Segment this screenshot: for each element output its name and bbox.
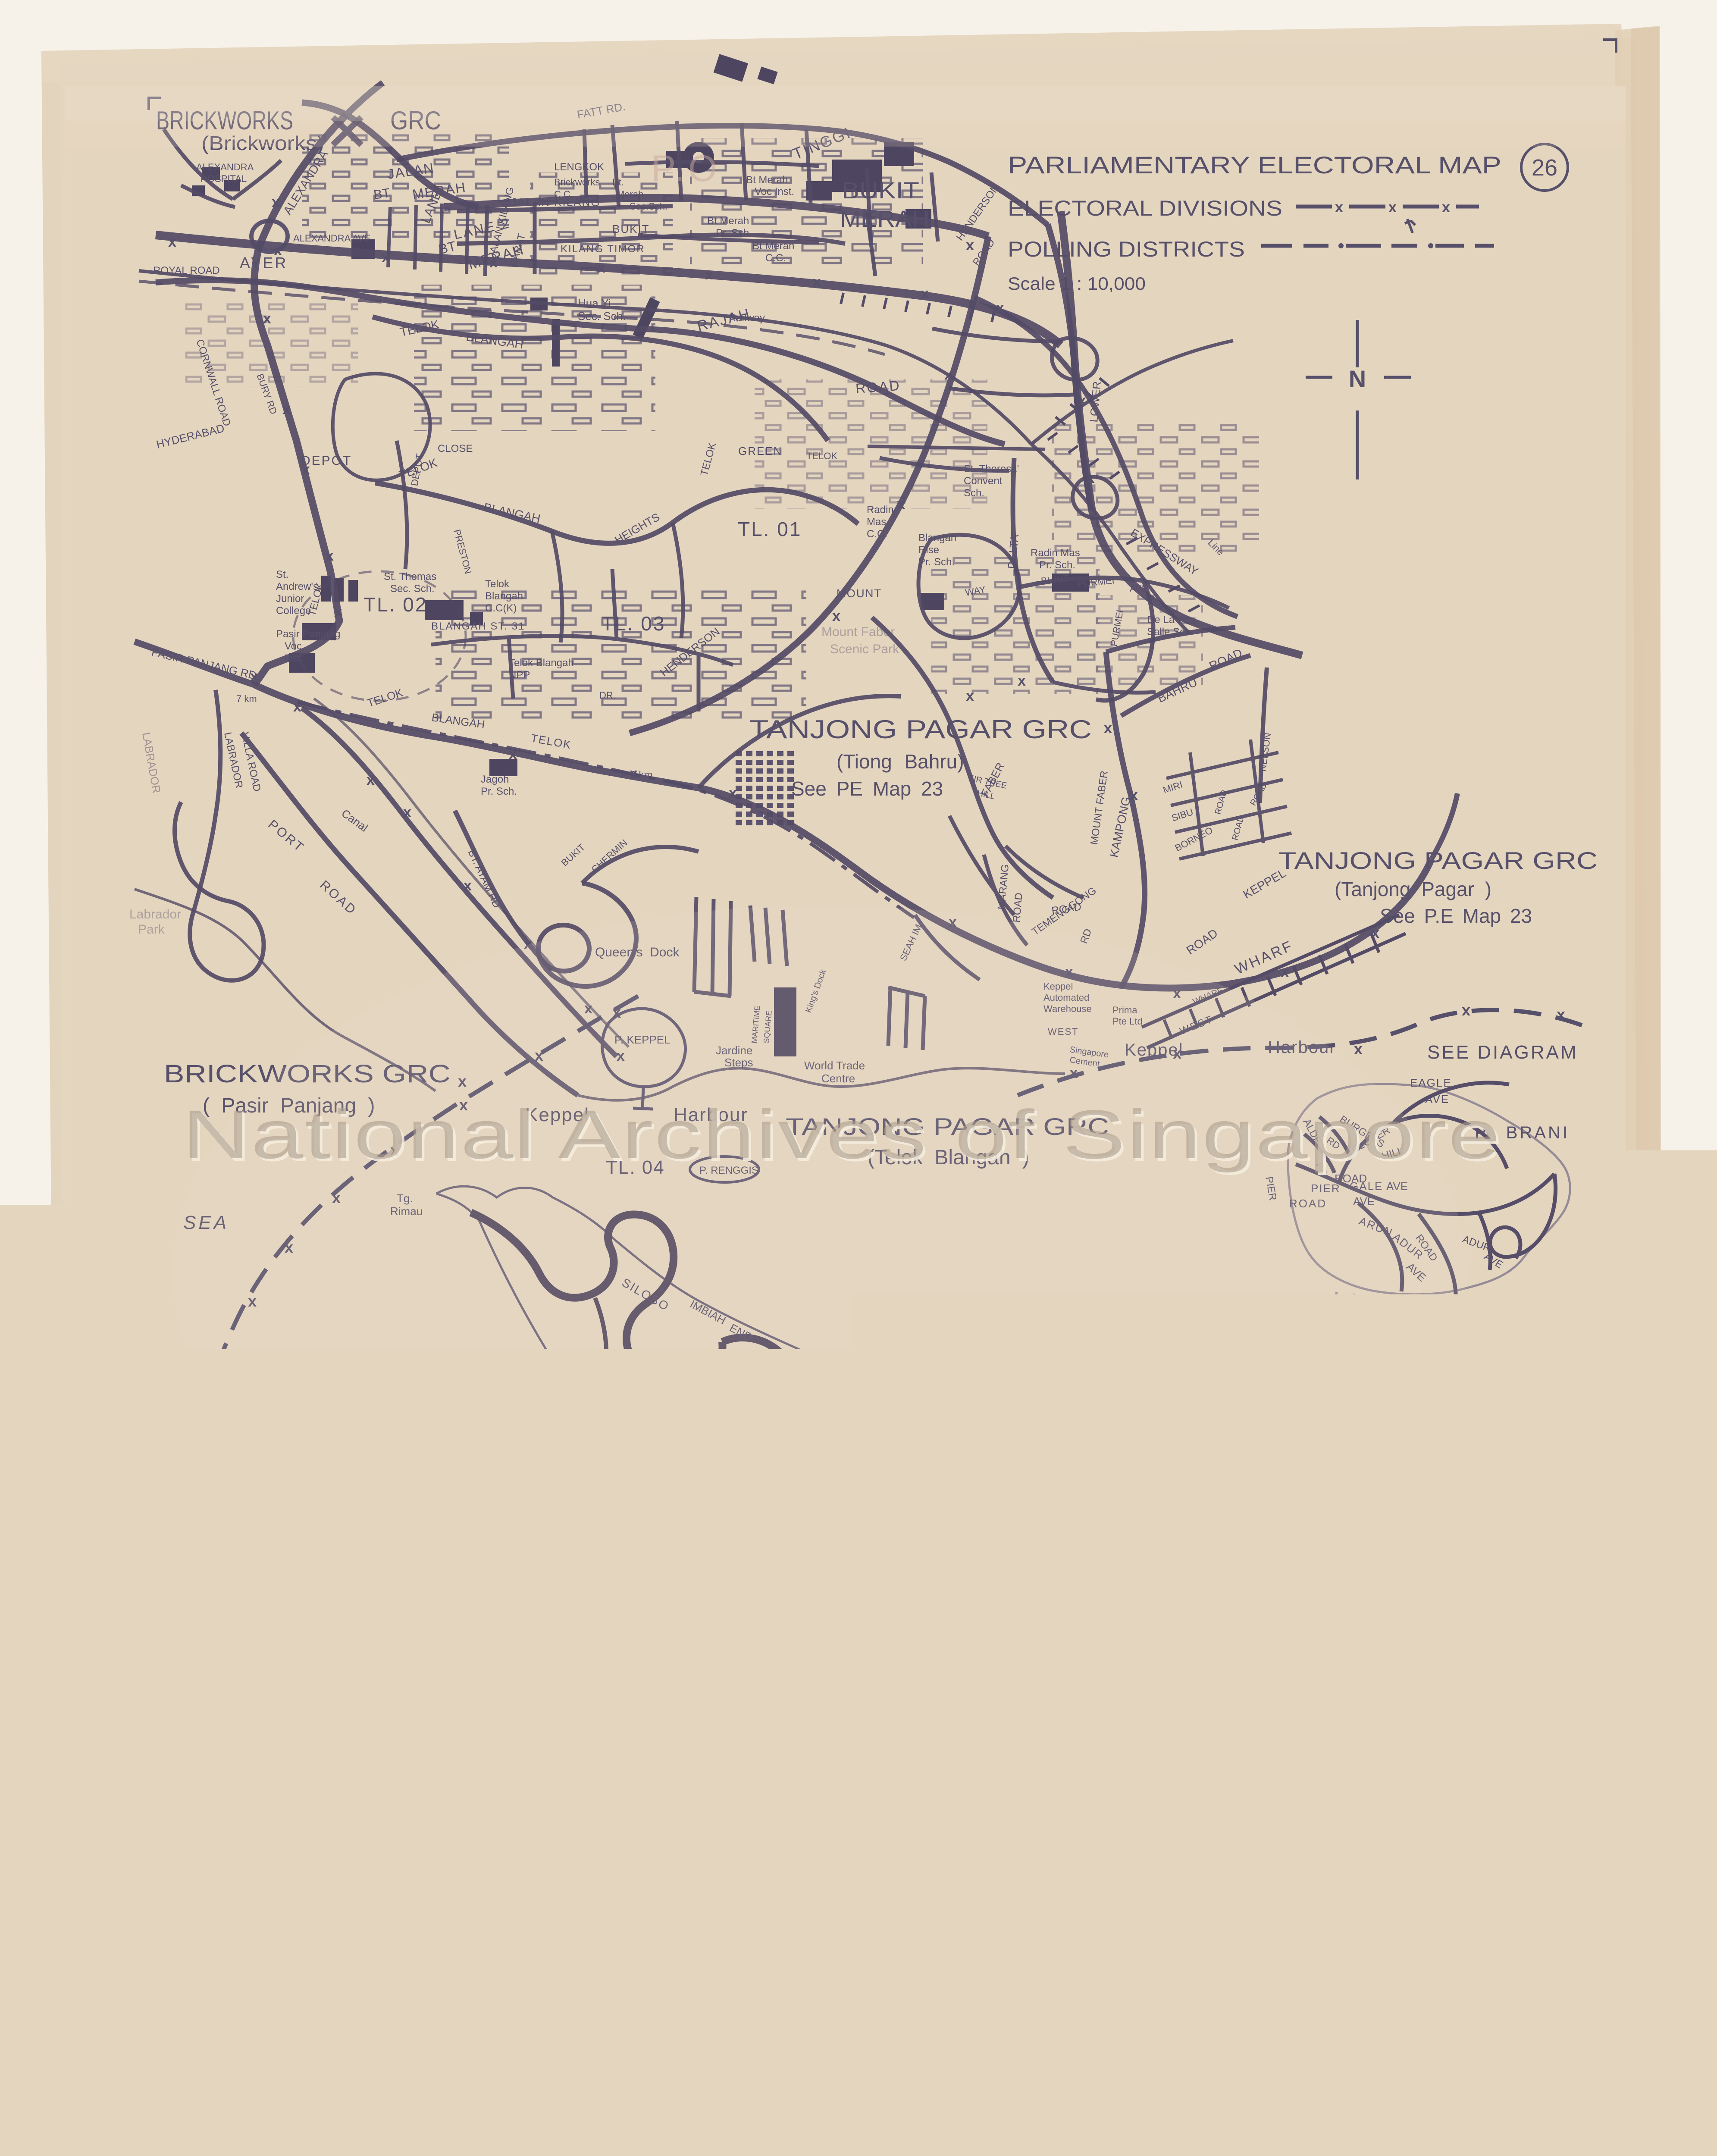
svg-text:Sch.: Sch. <box>964 487 984 499</box>
svg-text:Convent: Convent <box>964 475 1003 487</box>
svg-text:Mount Faber: Mount Faber <box>821 625 895 639</box>
svg-text:NPP: NPP <box>509 669 530 681</box>
svg-text:( Telok Blangah ): ( Telok Blangah ) <box>364 1684 530 1707</box>
svg-text:x: x <box>168 234 176 250</box>
svg-text:Mas: Mas <box>867 516 886 528</box>
svg-text:Chalets: Chalets <box>1291 1691 1326 1702</box>
svg-text:P.O: P.O <box>651 148 721 189</box>
svg-text:KILANG TIMOR: KILANG TIMOR <box>561 243 645 255</box>
svg-text:CLOSE: CLOSE <box>438 443 473 454</box>
svg-text:x: x <box>705 266 713 283</box>
svg-text:x: x <box>1557 1006 1565 1023</box>
svg-text:Bt.: Bt. <box>612 177 624 188</box>
svg-text:x: x <box>326 548 334 564</box>
svg-text:P. TEKUKOR: P. TEKUKOR <box>489 1722 551 1734</box>
svg-text:BT: BT <box>373 186 391 202</box>
svg-text:P. SUBAR LAUT: P. SUBAR LAUT <box>479 1880 555 1891</box>
svg-text:Pr. Sch.: Pr. Sch. <box>918 556 955 568</box>
svg-text:BLANGAH ST. 31: BLANGAH ST. 31 <box>431 620 525 632</box>
svg-text:MOUNT: MOUNT <box>837 587 882 600</box>
svg-text:Bendera: Bendera <box>1535 1438 1578 1451</box>
svg-text:C.C(K): C.C(K) <box>485 602 517 614</box>
svg-text:BURAN: BURAN <box>549 1622 586 1633</box>
svg-text:SEA: SEA <box>1000 1887 1046 1908</box>
svg-text:SENTOSA: SENTOSA <box>390 1607 457 1620</box>
svg-text:x: x <box>1371 925 1379 941</box>
svg-text:Merah: Merah <box>617 189 643 200</box>
svg-text:x: x <box>156 1712 164 1728</box>
svg-text:x: x <box>464 877 472 894</box>
svg-text:ELECTORAL DIVISIONS: ELECTORAL DIVISIONS <box>1008 196 1282 220</box>
svg-text:PARLIAMENTARY ELECTORAL MAP: PARLIAMENTARY ELECTORAL MAP <box>1008 151 1501 179</box>
svg-text:WOOLWICH: WOOLWICH <box>1391 1594 1466 1608</box>
svg-text:EAGLE: EAGLE <box>1410 1076 1452 1089</box>
svg-text:x: x <box>293 699 301 715</box>
svg-text:AYER: AYER <box>240 254 288 272</box>
svg-text:(PEAK ISLAND): (PEAK ISLAND) <box>676 1799 744 1809</box>
svg-text:x: x <box>1281 964 1289 980</box>
svg-text:x: x <box>966 688 974 704</box>
svg-text:LENGKOK: LENGKOK <box>554 161 604 173</box>
svg-text:x: x <box>282 401 291 417</box>
svg-text:Pr. Sch.: Pr. Sch. <box>716 227 752 239</box>
svg-text:x: x <box>1354 1040 1363 1058</box>
svg-text:College: College <box>276 605 311 617</box>
svg-text:DR.: DR. <box>599 690 616 701</box>
svg-text:26: 26 <box>1532 155 1557 181</box>
svg-text:Bt Merah: Bt Merah <box>746 174 788 186</box>
svg-text:x: x <box>198 1557 207 1573</box>
svg-text:N: N <box>1349 365 1366 392</box>
svg-text:TG.: TG. <box>233 1526 249 1537</box>
svg-text:P. TEMBAKUL: P. TEMBAKUL <box>669 1787 736 1799</box>
svg-text:RIMAU: RIMAU <box>229 1537 259 1548</box>
svg-text:Inst.: Inst. <box>285 652 304 664</box>
svg-text:P. SUBAR DARAT: P. SUBAR DARAT <box>468 1847 552 1859</box>
svg-text:7 km: 7 km <box>236 693 257 704</box>
svg-text:x: x <box>996 300 1004 316</box>
svg-text:x: x <box>509 746 517 762</box>
svg-text:x: x <box>334 604 342 620</box>
svg-text:( LAZARUS ISLAND ): ( LAZARUS ISLAND ) <box>640 1839 733 1850</box>
svg-text:P. RENGET: P. RENGET <box>590 1725 645 1737</box>
svg-text:Pr. Sch.: Pr. Sch. <box>1039 559 1075 571</box>
svg-text:ALEXANDRA: ALEXANDRA <box>196 162 254 172</box>
svg-text:Blangah: Blangah <box>485 590 523 602</box>
svg-text:Park: Park <box>138 922 165 937</box>
svg-text:NATIONAL LIBRARY BOARD: NATIONAL LIBRARY BOARD <box>868 2035 992 2045</box>
svg-text:Sec. Sch.: Sec. Sch. <box>578 310 626 323</box>
svg-text:Salle Sch.: Salle Sch. <box>1147 626 1194 638</box>
svg-text:x: x <box>1388 199 1397 216</box>
svg-text:x: x <box>170 1634 179 1651</box>
svg-text:C.C.: C.C. <box>867 528 887 540</box>
svg-text:C.C.: C.C. <box>765 252 786 264</box>
svg-text:TANJONG PAGAR GRC: TANJONG PAGAR GRC <box>749 715 1092 744</box>
svg-text:MERAH: MERAH <box>840 206 930 232</box>
svg-text:DARAT: DARAT <box>551 1633 586 1645</box>
svg-text:x: x <box>1442 199 1450 216</box>
svg-text:GREEN: GREEN <box>738 445 782 458</box>
svg-text:SEA: SEA <box>247 1786 281 1802</box>
svg-text:JALAN KILANG: JALAN KILANG <box>511 196 601 209</box>
svg-text:x: x <box>839 1893 847 1909</box>
svg-text:Bt Merah: Bt Merah <box>707 215 749 227</box>
svg-text:HOSPITAL: HOSPITAL <box>201 173 247 184</box>
svg-text:B30155633D: B30155633D <box>868 2072 936 2085</box>
svg-text:x: x <box>1078 392 1086 409</box>
svg-text:Hua Yi: Hua Yi <box>578 297 611 310</box>
svg-text:BUKIT: BUKIT <box>612 222 650 235</box>
svg-text:TG. CHINA: TG. CHINA <box>452 1682 496 1692</box>
svg-text:Pr. Sch.: Pr. Sch. <box>481 786 517 797</box>
svg-text:Telok Blangah: Telok Blangah <box>509 657 574 669</box>
svg-text:TL. 03: TL. 03 <box>602 612 665 635</box>
svg-text:x: x <box>1087 470 1095 486</box>
svg-text:Blangah: Blangah <box>918 532 956 544</box>
svg-text:(Tiong Bahru): (Tiong Bahru) <box>837 750 964 773</box>
svg-text:x: x <box>776 1940 784 1957</box>
svg-text:x: x <box>921 285 929 302</box>
svg-text:TELOK: TELOK <box>806 451 837 461</box>
svg-text:x: x <box>897 496 905 512</box>
svg-text:x: x <box>1104 720 1112 736</box>
svg-text:Junior: Junior <box>276 593 304 605</box>
svg-text:Voc Inst.: Voc Inst. <box>755 186 794 197</box>
svg-text:National Archives of Singapore: National Archives of Singapore <box>182 1096 1501 1173</box>
svg-text:DIAGRAM: DIAGRAM <box>689 2046 807 2070</box>
svg-text:Serapong: Serapong <box>1391 1515 1474 1536</box>
svg-text:AVE: AVE <box>1130 583 1148 594</box>
svg-text:x: x <box>944 367 952 383</box>
svg-text:St. Thomas: St. Thomas <box>384 571 436 583</box>
svg-text:x: x <box>815 1820 823 1836</box>
svg-text:De La: De La <box>1147 614 1175 626</box>
svg-text:St. Theresa': St. Theresa' <box>964 463 1019 475</box>
svg-text:x: x <box>699 1979 707 1996</box>
svg-text:x: x <box>157 1785 166 1802</box>
svg-text:TL. 01: TL. 01 <box>738 518 802 540</box>
svg-text:Scale 1 : 10,000: Scale 1 : 10,000 <box>1008 273 1146 294</box>
svg-text:x: x <box>832 608 840 624</box>
svg-text:x: x <box>382 249 390 266</box>
svg-text:x: x <box>1335 199 1343 216</box>
svg-text:Telok: Telok <box>1535 1426 1562 1438</box>
svg-text:Pasir Panjang: Pasir Panjang <box>276 628 340 640</box>
svg-text:x: x <box>367 772 375 788</box>
svg-text:Holiday: Holiday <box>1289 1679 1324 1691</box>
svg-text:x: x <box>813 274 821 290</box>
svg-text:St.: St. <box>276 569 288 580</box>
svg-text:Bt Merah: Bt Merah <box>752 240 794 252</box>
svg-text:x: x <box>966 237 974 254</box>
svg-text:Scale 1 : 50,000: Scale 1 : 50,000 <box>675 2074 820 2094</box>
svg-text:(Tanjong Pagar ): (Tanjong Pagar ) <box>1335 878 1491 900</box>
svg-text:P. SAKIJANG BENDERA: P. SAKIJANG BENDERA <box>587 1855 703 1866</box>
svg-text:See P.E Map 23: See P.E Map 23 <box>1380 905 1532 927</box>
svg-text:Rise: Rise <box>918 544 939 556</box>
svg-text:F 6 km: F 6 km <box>621 769 652 781</box>
svg-text:x: x <box>729 785 737 801</box>
svg-text:Sec.Sch.: Sec.Sch. <box>630 201 667 212</box>
svg-text:BUKIT: BUKIT <box>842 178 919 204</box>
svg-text:x: x <box>272 194 280 210</box>
svg-text:x: x <box>1018 673 1026 689</box>
svg-text:P. SAKIJANG PELEPAH: P. SAKIJANG PELEPAH <box>632 1828 744 1839</box>
svg-text:Scenic Park: Scenic Park <box>830 642 899 656</box>
svg-text:Labrador: Labrador <box>129 907 181 921</box>
svg-text:Jagoh: Jagoh <box>481 774 509 785</box>
svg-text:Andrew's: Andrew's <box>276 581 318 592</box>
svg-text:Telok: Telok <box>485 578 510 590</box>
svg-text:x: x <box>785 1751 793 1767</box>
svg-text:PENYABONG: PENYABONG <box>489 1744 554 1755</box>
svg-text:Brickworks: Brickworks <box>554 177 600 188</box>
svg-text:DEPOT: DEPOT <box>301 454 352 468</box>
svg-text:Sec. Sch.: Sec. Sch. <box>390 583 435 595</box>
svg-text:See PE Map 23: See PE Map 23 <box>791 777 943 800</box>
svg-text:POLLING DISTRICTS: POLLING DISTRICTS <box>1008 237 1245 261</box>
svg-text:x: x <box>175 1850 183 1866</box>
svg-text:TL. 02: TL. 02 <box>363 593 427 616</box>
svg-text:ROYAL ROAD: ROYAL ROAD <box>153 265 220 276</box>
svg-text:Voc.: Voc. <box>285 640 305 652</box>
svg-text:Radin Mas: Radin Mas <box>1031 547 1080 559</box>
svg-text:x: x <box>597 260 605 276</box>
svg-text:ALEXANDRA AVE: ALEXANDRA AVE <box>293 233 370 244</box>
svg-text:ROAD: ROAD <box>855 378 901 396</box>
svg-text:or: or <box>511 1735 519 1744</box>
svg-text:x: x <box>263 310 271 327</box>
svg-text:Radin: Radin <box>867 504 894 516</box>
svg-text:x: x <box>403 804 411 821</box>
svg-text:Mount: Mount <box>1401 1495 1455 1515</box>
svg-text:x: x <box>746 1686 754 1702</box>
svg-text:SEE DIAGRAM: SEE DIAGRAM <box>1427 1042 1578 1063</box>
svg-text:x: x <box>1462 1001 1470 1019</box>
svg-text:Tg. China: Tg. China <box>1360 1924 1409 1937</box>
svg-text:(ST. JOHN'S ISLAND ): (ST. JOHN'S ISLAND ) <box>587 1866 683 1877</box>
svg-text:TL. 04: TL. 04 <box>414 1787 453 1801</box>
svg-text:TANJONG PAGAR GRC: TANJONG PAGAR GRC <box>1278 847 1598 874</box>
svg-text:Lagoon: Lagoon <box>1054 1616 1086 1626</box>
svg-text:x: x <box>235 1475 243 1491</box>
